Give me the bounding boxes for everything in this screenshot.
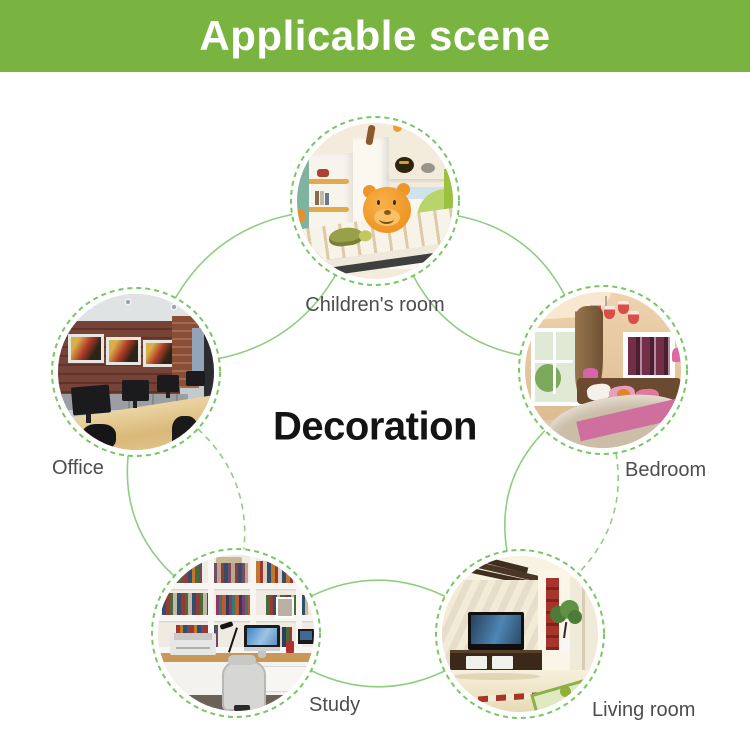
shelf-board	[309, 207, 349, 212]
page: Applicable scene	[0, 0, 750, 750]
framed-picture	[106, 337, 141, 365]
plant	[546, 600, 586, 670]
lamp-head	[220, 621, 234, 630]
label-children-room: Children's room	[305, 294, 444, 317]
label-study: Study	[309, 694, 360, 717]
drawer-front	[492, 656, 513, 669]
office-chair	[82, 424, 116, 450]
lamp-shade	[604, 306, 615, 319]
children-room-photo	[297, 123, 453, 279]
monitor	[71, 384, 111, 415]
books-row	[162, 593, 208, 615]
monitor-stand	[86, 414, 91, 423]
office-photo	[58, 294, 214, 450]
framed-picture	[623, 332, 675, 380]
bee-plush	[395, 157, 414, 173]
monitor	[186, 371, 205, 386]
toy-books	[315, 191, 319, 205]
bear-eye	[377, 200, 380, 205]
green-ball	[560, 686, 571, 697]
office-chair	[172, 416, 198, 448]
living-room-photo	[442, 556, 598, 712]
books-row	[214, 563, 248, 583]
monitor	[157, 375, 179, 392]
tv-screen	[471, 615, 521, 644]
console-top	[450, 650, 542, 653]
bee-stripe	[399, 161, 409, 164]
printer	[170, 633, 216, 655]
gray-plush	[421, 163, 435, 173]
ceiling-light-icon	[86, 302, 94, 310]
wall-sconce	[672, 348, 681, 362]
books-row	[166, 561, 202, 583]
center-title: Decoration	[273, 405, 477, 450]
second-monitor	[298, 629, 314, 644]
chair-headrest	[228, 655, 256, 665]
monitor-stand	[166, 392, 170, 398]
window-greenery	[535, 364, 561, 392]
office-chair	[220, 655, 264, 711]
shelf-board	[158, 583, 314, 589]
plant-leaves	[568, 610, 582, 624]
wall-dot-icon	[393, 123, 402, 132]
red-cup	[286, 641, 294, 653]
chandelier-stem	[605, 296, 607, 306]
toy-binoculars	[317, 169, 329, 177]
plant-vase	[559, 638, 570, 654]
tv-console	[450, 650, 542, 672]
desk-lamp	[220, 621, 244, 655]
chair-back	[222, 661, 266, 711]
label-living-room: Living room	[592, 699, 695, 722]
decor-panel	[204, 312, 214, 398]
bedroom-photo	[525, 292, 681, 448]
picture-art	[628, 337, 670, 375]
printer-slot	[176, 647, 210, 649]
lamp-arm	[228, 627, 238, 652]
label-bedroom: Bedroom	[625, 459, 706, 482]
label-office: Office	[52, 457, 104, 480]
tv	[468, 612, 524, 650]
drawer-front	[466, 656, 487, 669]
wall-dot-icon	[429, 131, 438, 140]
framed-picture	[68, 334, 104, 363]
printer-top	[174, 633, 212, 640]
books-row	[256, 561, 300, 583]
toy-books	[325, 193, 329, 205]
window-mullion	[535, 360, 573, 363]
wall-dot-icon	[325, 125, 336, 136]
window-mullion	[553, 332, 556, 394]
bear-eye	[393, 200, 396, 205]
imac-display	[247, 628, 277, 645]
ceiling-light-icon	[170, 303, 178, 311]
shelf-board	[309, 179, 349, 184]
ceiling-light-icon	[124, 298, 132, 306]
imac-monitor	[244, 625, 282, 659]
toy-books	[320, 191, 324, 205]
lamp-shade	[628, 311, 639, 324]
turtle-head	[358, 230, 372, 243]
bear-smile	[379, 214, 394, 224]
study-photo	[158, 555, 314, 711]
monitor	[122, 380, 149, 401]
chair-base	[234, 705, 250, 711]
screen-glow	[300, 631, 312, 640]
monitor-stand	[133, 401, 137, 408]
floor-reflection	[452, 673, 540, 680]
photo-frame	[276, 597, 294, 618]
